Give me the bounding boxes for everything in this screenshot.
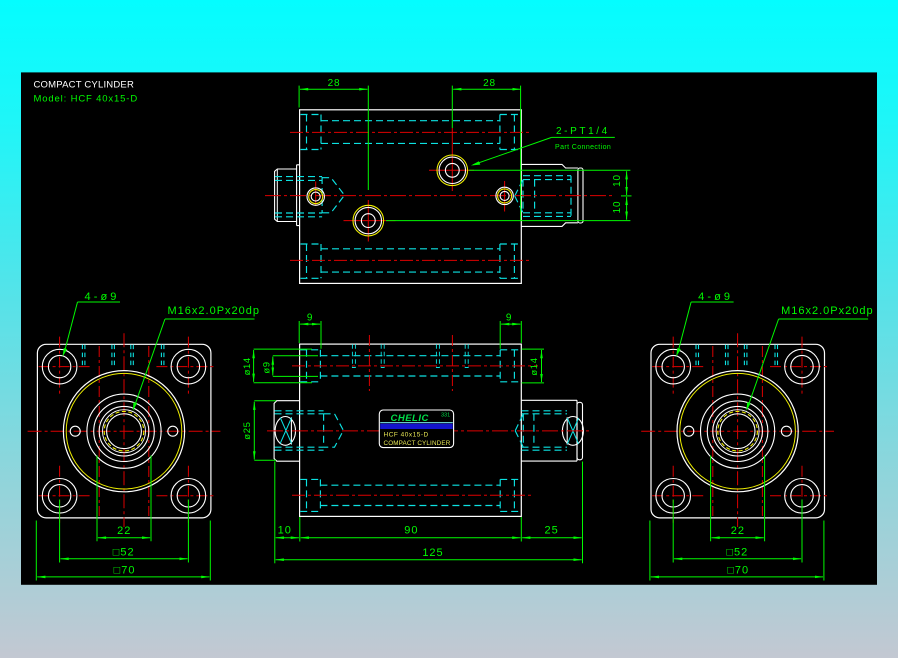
svg-text:10: 10 xyxy=(612,174,623,187)
svg-text:125: 125 xyxy=(422,547,443,559)
svg-text:ø25: ø25 xyxy=(242,422,253,440)
svg-text:9: 9 xyxy=(506,313,512,324)
svg-text:ø14: ø14 xyxy=(242,357,253,375)
svg-text:22: 22 xyxy=(117,525,131,537)
svg-text:9: 9 xyxy=(307,313,313,324)
svg-text:2-PT1/4: 2-PT1/4 xyxy=(556,126,610,137)
svg-text:Model: HCF 40x15-D: Model: HCF 40x15-D xyxy=(34,93,139,104)
svg-text:ø9: ø9 xyxy=(262,361,273,373)
svg-text:25: 25 xyxy=(544,525,558,537)
svg-text:□52: □52 xyxy=(113,546,135,558)
svg-text:COMPACT CYLINDER: COMPACT CYLINDER xyxy=(34,80,135,91)
svg-text:ø14: ø14 xyxy=(529,357,540,375)
svg-text:HCF 40x15-D: HCF 40x15-D xyxy=(384,432,429,439)
svg-text:28: 28 xyxy=(328,78,341,89)
svg-text:□70: □70 xyxy=(114,565,136,577)
svg-text:331: 331 xyxy=(441,413,450,419)
svg-text:Part Connection: Part Connection xyxy=(555,144,611,151)
svg-text:28: 28 xyxy=(483,78,496,89)
svg-text:COMPACT CYLINDER: COMPACT CYLINDER xyxy=(384,440,451,447)
svg-text:90: 90 xyxy=(404,525,418,537)
svg-text:10: 10 xyxy=(278,525,292,537)
svg-text:4-ø9: 4-ø9 xyxy=(85,291,120,303)
svg-text:10: 10 xyxy=(612,201,623,214)
svg-text:M16x2.0Px20dp: M16x2.0Px20dp xyxy=(168,305,261,317)
